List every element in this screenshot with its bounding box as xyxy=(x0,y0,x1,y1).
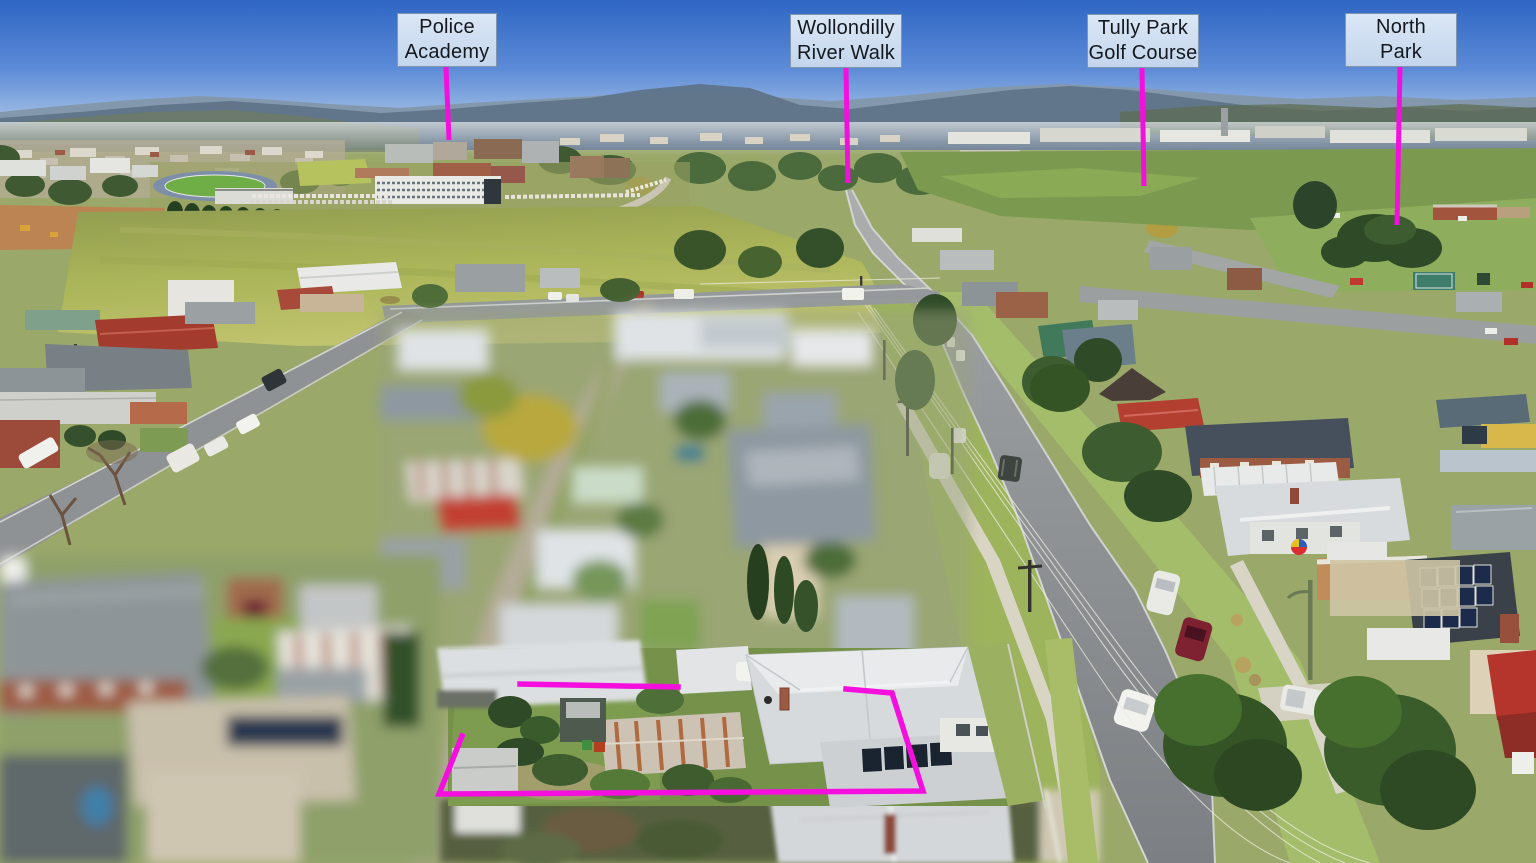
label-line1: Police xyxy=(419,15,475,40)
label-line2: Academy xyxy=(405,40,490,65)
left-suburb xyxy=(0,302,424,568)
pointer-line-tully-park-golf-course xyxy=(1142,68,1144,186)
aerial-photo xyxy=(0,0,1536,863)
label-line1: Wollondilly xyxy=(797,16,894,41)
label-line1: Tully Park xyxy=(1098,16,1188,41)
aerial-photo-stage: Police Academy Wollondilly River Walk Tu… xyxy=(0,0,1536,863)
annotation-label-north-park: North Park xyxy=(1345,13,1457,67)
pointer-line-north-park xyxy=(1397,67,1400,225)
property-boundary xyxy=(520,684,678,687)
label-line2: River Walk xyxy=(797,41,895,66)
label-line2: Park xyxy=(1380,40,1422,65)
annotation-label-police-academy: Police Academy xyxy=(397,13,497,67)
pointer-line-wollondilly-river-walk xyxy=(846,68,848,183)
annotation-label-wollondilly-river-walk: Wollondilly River Walk xyxy=(790,14,902,68)
blurred-neighbourhood-left xyxy=(0,556,440,863)
label-line1: North xyxy=(1376,15,1426,40)
annotation-label-tully-park-golf-course: Tully Park Golf Course xyxy=(1087,14,1199,68)
pointer-line-police-academy xyxy=(446,67,449,140)
label-line2: Golf Course xyxy=(1089,41,1198,66)
